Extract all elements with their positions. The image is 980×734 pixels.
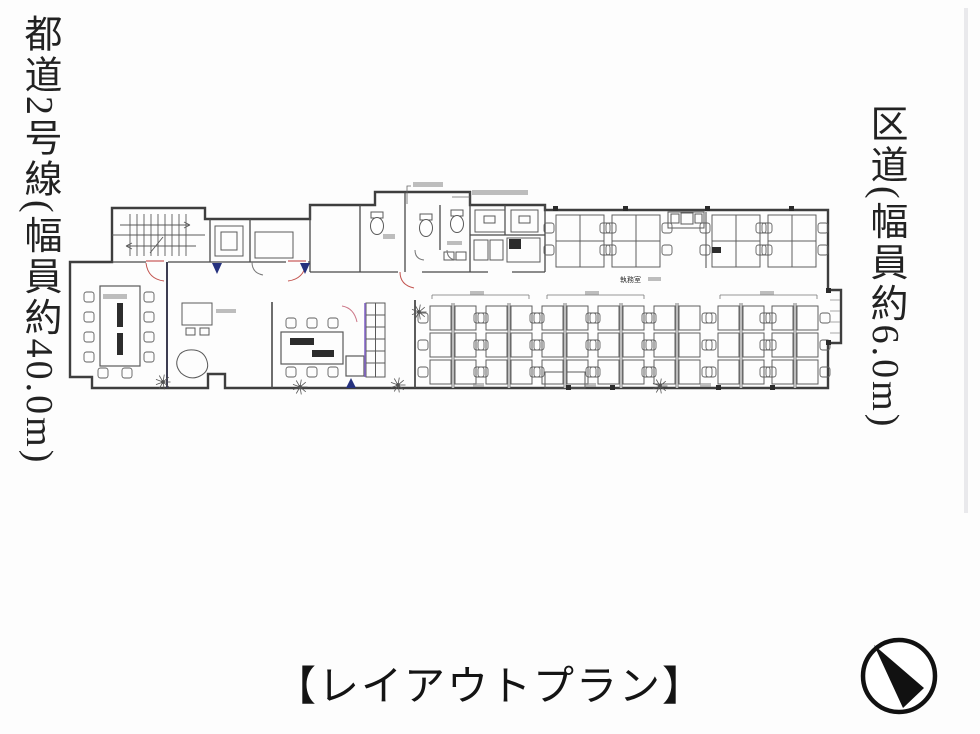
storage-cabinet [365,303,385,377]
leader-annotations [407,186,470,204]
kitchenette [474,210,540,262]
entry-marks [212,263,356,388]
interior-walls [112,192,706,388]
floor-plan: 執務室 [0,0,980,734]
zone-brackets [432,295,817,299]
north-arrow-icon [863,640,935,712]
copier-counter [668,212,704,228]
door-arcs [146,261,414,322]
office-label: 執務室 [620,275,641,284]
ev-hall [215,226,293,258]
staircase [112,214,205,256]
lounge [177,303,212,378]
